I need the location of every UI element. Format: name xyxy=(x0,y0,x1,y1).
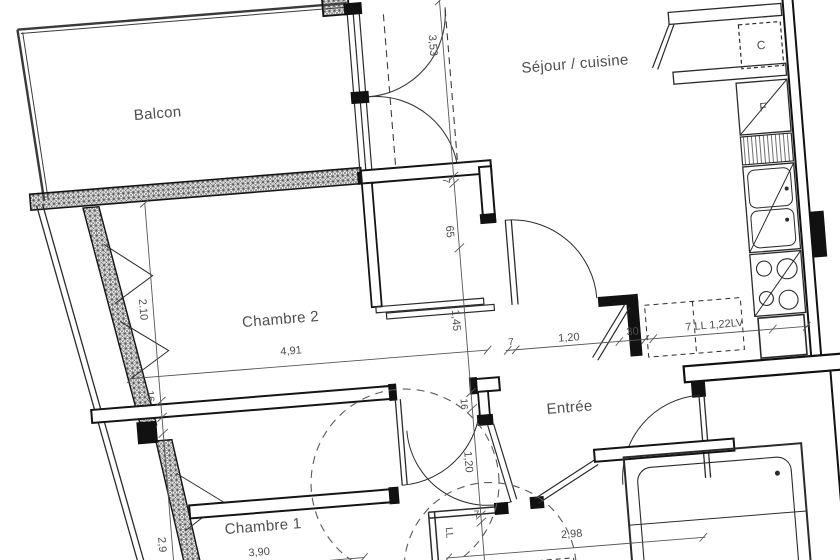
dim-wall-16-left: 16 xyxy=(144,390,155,402)
bathtub xyxy=(624,443,813,560)
dim-closet-depth: 65 xyxy=(443,225,455,238)
dishwasher-box xyxy=(758,315,807,359)
dim-wall-16-mid: 16 xyxy=(457,398,468,410)
floorplan-viewport: Balcon Séjour / cuisine Chambre 2 Entrée… xyxy=(0,0,840,560)
bay-door-swings xyxy=(362,7,458,179)
dim-chambre1-height: 2,9 xyxy=(155,537,167,553)
balcony-wall-hatched xyxy=(15,0,363,210)
dim-closet-width: 1,45 xyxy=(449,309,462,331)
appliance-label-c: C xyxy=(756,39,766,52)
dim-closet-7: 7 xyxy=(474,510,480,520)
drainer xyxy=(740,133,793,165)
appliance-label-f: F xyxy=(759,101,767,114)
dim-window-height: 2.10 xyxy=(136,298,149,320)
label-washer-ll: LL xyxy=(443,527,454,539)
hood-shelf xyxy=(668,3,782,24)
dim-hall-120: 1,20 xyxy=(461,451,474,473)
dim-bath-width: 2,98 xyxy=(561,529,583,542)
burner-icon xyxy=(759,291,774,306)
bay-window xyxy=(343,2,376,185)
hood-flap xyxy=(649,24,677,70)
burner-icon xyxy=(756,261,772,277)
floorplan-rotated-canvas: Balcon Séjour / cuisine Chambre 2 Entrée… xyxy=(0,0,840,560)
dim-chambre2-width: 4,91 xyxy=(280,345,302,358)
drain-icon xyxy=(775,470,780,475)
closet-sliding-doors xyxy=(376,297,495,319)
floorplan-drawing xyxy=(0,0,840,560)
dim-wall-7-top: 7 xyxy=(440,178,450,184)
kitchen-counter xyxy=(648,3,809,365)
dim-bay-height: 3,53 xyxy=(426,34,439,56)
dim-opening-120: 1,20 xyxy=(558,332,580,345)
burner-icon xyxy=(778,289,798,309)
faucet-icon xyxy=(785,217,789,221)
dim-chambre1-width: 3,90 xyxy=(248,547,270,560)
bathtub-inner xyxy=(637,456,800,560)
room-label-entree: Entrée xyxy=(546,398,593,417)
sink-basin xyxy=(750,208,796,248)
sejour-door xyxy=(480,205,597,307)
dimension-lines xyxy=(98,0,832,560)
dim-wall-7-mid: 7 xyxy=(508,338,514,348)
faucet-icon xyxy=(784,186,788,190)
dim-niche-30: 30 xyxy=(626,326,639,338)
room-label-balcon: Balcon xyxy=(133,104,182,123)
entrance-door xyxy=(615,381,712,485)
burner-icon xyxy=(776,258,798,280)
